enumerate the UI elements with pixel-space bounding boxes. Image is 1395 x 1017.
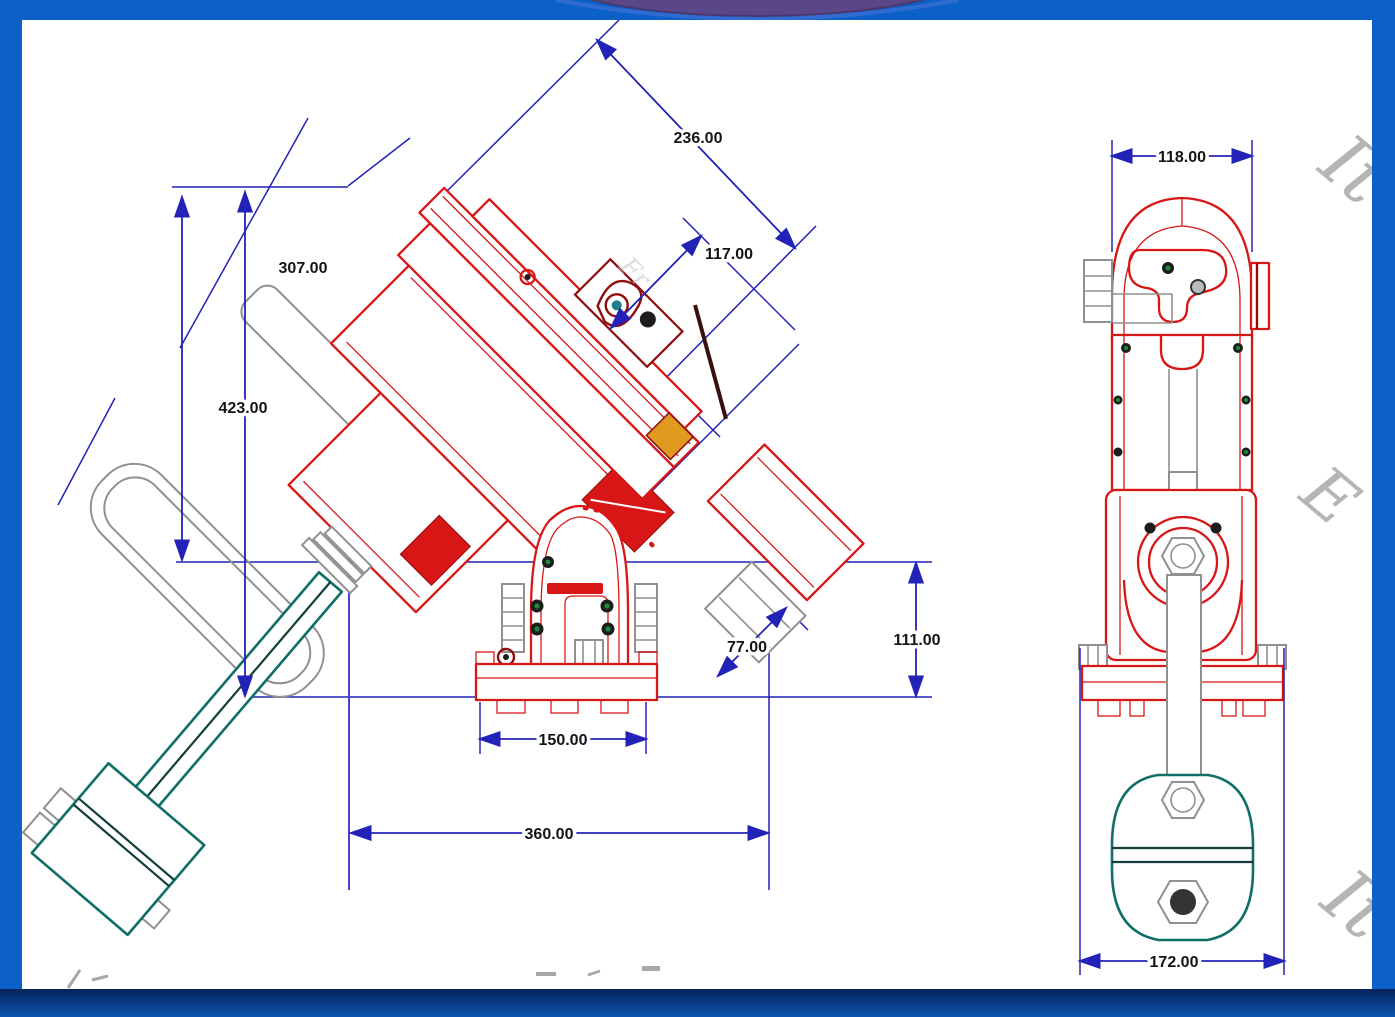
shaft-front — [1167, 575, 1201, 793]
dimension-label-307: 307.00 — [279, 260, 328, 277]
counterweight-front — [1112, 775, 1253, 940]
dimension-label-150: 150.00 — [539, 732, 588, 749]
dimension-label-172: 172.00 — [1150, 954, 1199, 971]
dimension-label-117: 117.00 — [705, 246, 753, 263]
dimension-label-423: 423.00 — [219, 400, 268, 417]
dimension-label-118: 118.00 — [1158, 149, 1206, 166]
altitude-adjuster-left — [502, 584, 524, 652]
cw-bore — [1170, 889, 1196, 915]
cad-sheet: 307.00 423.00 236.00 117.00 77.00 111.00 — [0, 0, 1395, 1017]
slot-bolt — [1191, 280, 1205, 294]
dimension-label-77: 77.00 — [727, 639, 767, 656]
dimension-label-236: 236.00 — [674, 130, 723, 147]
dimension-label-360: 360.00 — [525, 826, 574, 843]
right-knob — [1251, 263, 1269, 329]
left-knob — [1084, 260, 1112, 322]
maker-label-bar — [547, 583, 603, 594]
altitude-adjuster-right — [635, 584, 657, 652]
screenshot-stage: 307.00 423.00 236.00 117.00 77.00 111.00 — [0, 0, 1395, 1017]
frame-bottom-bar — [0, 989, 1395, 1017]
dimension-label-111: 111.00 — [893, 632, 940, 649]
front-body — [1112, 335, 1252, 490]
base-plate — [476, 664, 657, 700]
